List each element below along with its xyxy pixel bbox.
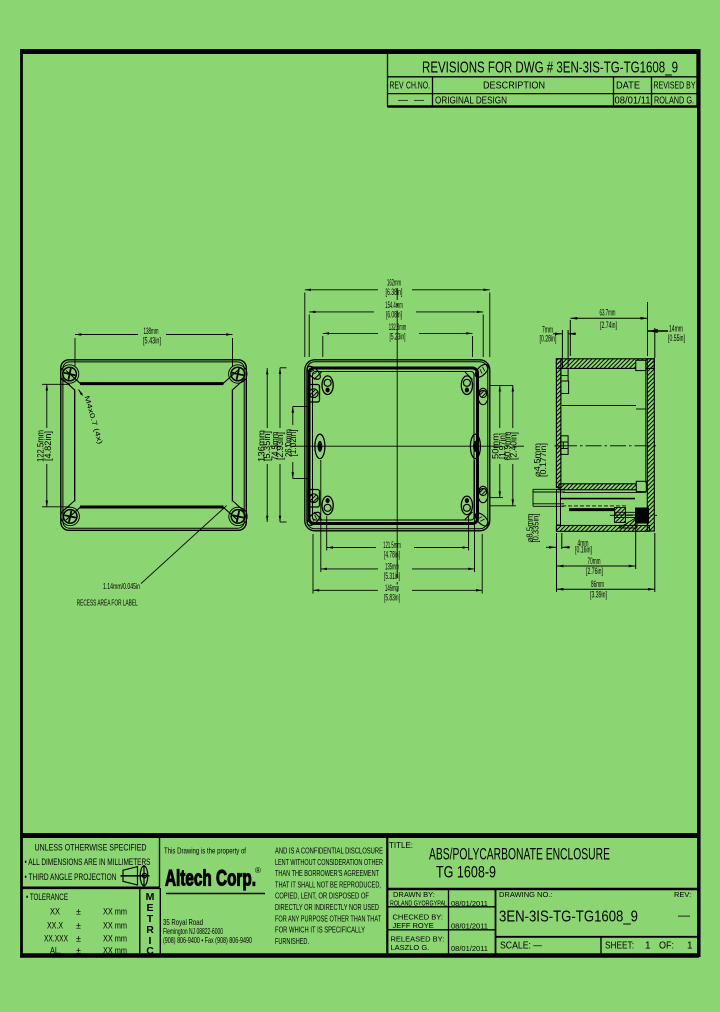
svg-text:[0.55in]: [0.55in]	[668, 333, 685, 344]
svg-text:[5.83in]: [5.83in]	[384, 593, 400, 604]
svg-text:[6.08in]: [6.08in]	[386, 310, 402, 321]
svg-text:63.7mm: 63.7mm	[600, 308, 616, 319]
svg-text:08/01/11: 08/01/11	[615, 96, 651, 107]
svg-text:3EN-3IS-TG-TG1608_9: 3EN-3IS-TG-TG1608_9	[499, 909, 638, 926]
svg-text:DIRECTLY OR INDIRECTLY NOR USE: DIRECTLY OR INDIRECTLY NOR USED	[275, 903, 379, 912]
svg-text:This Drawing is the property o: This Drawing is the property of	[164, 846, 246, 856]
svg-text:XX.X: XX.X	[47, 921, 63, 931]
svg-text:1.14mm/0.045in: 1.14mm/0.045in	[103, 581, 140, 591]
svg-text:[0.16in]: [0.16in]	[575, 545, 592, 556]
svg-text:XX.XXX: XX.XXX	[44, 934, 68, 944]
svg-text:±: ±	[76, 921, 81, 931]
svg-text:—: —	[398, 95, 408, 106]
svg-text:FURNISHED.: FURNISHED.	[275, 937, 309, 946]
svg-text:ROLAND GYORGYPAL: ROLAND GYORGYPAL	[390, 899, 447, 908]
svg-text:08/01/2011: 08/01/2011	[451, 922, 488, 931]
svg-text:• ALL DIMENSIONS ARE IN MILLIM: • ALL DIMENSIONS ARE IN MILLIMETERS	[25, 857, 151, 868]
svg-text:08/01/2011: 08/01/2011	[451, 944, 488, 953]
svg-text:±: ±	[76, 946, 81, 956]
svg-text:XX mm: XX mm	[103, 934, 127, 944]
svg-text:• THIRD ANGLE PROJECTION: • THIRD ANGLE PROJECTION	[25, 872, 117, 883]
svg-text:DRAWING NO.:: DRAWING NO.:	[499, 890, 552, 899]
svg-text:—: —	[678, 908, 690, 922]
svg-text:[5.43in]: [5.43in]	[143, 336, 161, 347]
svg-text:REVISED BY: REVISED BY	[654, 81, 696, 92]
svg-text:[5.23in]: [5.23in]	[390, 332, 406, 343]
svg-text:XX mm: XX mm	[103, 907, 127, 917]
svg-text:TITLE:: TITLE:	[389, 841, 413, 850]
svg-text:DATE: DATE	[616, 81, 640, 92]
svg-text:ABS/POLYCARBONATE ENCLOSURE: ABS/POLYCARBONATE ENCLOSURE	[429, 846, 610, 864]
svg-text:Altech Corp.: Altech Corp.	[165, 866, 256, 891]
svg-text:AL.: AL.	[50, 946, 61, 956]
svg-text:1: 1	[645, 941, 651, 952]
svg-text:FOR WHICH IT IS SPECIFICALLY: FOR WHICH IT IS SPECIFICALLY	[275, 926, 365, 935]
svg-text:C: C	[146, 945, 154, 957]
svg-text:COPIED, LENT, OR DISPOSED OF: COPIED, LENT, OR DISPOSED OF	[275, 892, 369, 901]
svg-text:DESCRIPTION: DESCRIPTION	[483, 81, 545, 92]
svg-text:[4.82in]: [4.82in]	[43, 431, 53, 461]
svg-text:FOR ANY PURPOSE OTHER THAN THA: FOR ANY PURPOSE OTHER THAN THAT	[275, 914, 381, 923]
svg-text:THAT IT SHALL NOT BE REPRODUCE: THAT IT SHALL NOT BE REPRODUCED,	[275, 880, 381, 889]
svg-text:[0.177in]: [0.177in]	[538, 443, 548, 477]
svg-text:[2.40in]: [2.40in]	[509, 432, 519, 460]
svg-text:THAN THE BORROWER'S AGREEMENT: THAN THE BORROWER'S AGREEMENT	[275, 869, 379, 878]
svg-text:XX mm: XX mm	[103, 921, 127, 931]
svg-text:XX: XX	[50, 907, 60, 917]
svg-text:[1.02in]: [1.02in]	[288, 430, 298, 457]
svg-text:LASZLO G.: LASZLO G.	[391, 943, 430, 952]
svg-text:OF:: OF:	[659, 941, 674, 952]
svg-text:JEFF ROYE: JEFF ROYE	[393, 921, 434, 930]
svg-text:[0.28in]: [0.28in]	[540, 334, 557, 345]
svg-text:REVISIONS FOR DWG # 3EN-3IS-TG: REVISIONS FOR DWG # 3EN-3IS-TG-TG1608_9	[422, 60, 678, 77]
svg-text:ORIGINAL DESIGN: ORIGINAL DESIGN	[435, 96, 507, 107]
svg-text:REV: REV	[390, 81, 404, 92]
svg-text:®: ®	[255, 866, 261, 875]
svg-text:[4.78in]: [4.78in]	[384, 550, 400, 561]
svg-text:(908) 806-9400 • Fax (908) 806: (908) 806-9400 • Fax (908) 806-9490	[163, 935, 252, 945]
svg-text:±: ±	[76, 907, 81, 917]
svg-text:[5.31in]: [5.31in]	[384, 571, 400, 582]
svg-text:TG 1608-9: TG 1608-9	[436, 864, 496, 882]
svg-text:LENT WITHOUT CONSIDERATION OTH: LENT WITHOUT CONSIDERATION OTHER	[275, 858, 383, 867]
svg-text:1: 1	[687, 941, 693, 952]
svg-text:AND IS A CONFIDENTIAL DISCLOSU: AND IS A CONFIDENTIAL DISCLOSURE	[275, 847, 383, 856]
svg-text:[2.74in]: [2.74in]	[600, 320, 617, 331]
svg-text:[2.76in]: [2.76in]	[586, 566, 603, 577]
svg-text:[6.38in]: [6.38in]	[386, 287, 403, 298]
svg-text:08/01/2011: 08/01/2011	[451, 899, 488, 908]
svg-text:CH.NO.: CH.NO.	[406, 81, 430, 92]
svg-text:ROLAND G.: ROLAND G.	[654, 96, 694, 107]
svg-text:[3.39in]: [3.39in]	[590, 589, 607, 600]
svg-text:—: —	[414, 95, 424, 106]
svg-text:REV:: REV:	[674, 890, 691, 899]
svg-text:SHEET:: SHEET:	[605, 941, 634, 952]
svg-text:±: ±	[76, 934, 81, 944]
svg-text:SCALE: —: SCALE: —	[500, 941, 542, 952]
svg-text:XX mm: XX mm	[103, 946, 127, 956]
svg-text:UNLESS OTHERWISE SPECIFIED: UNLESS OTHERWISE SPECIFIED	[35, 843, 147, 854]
svg-text:RECESS AREA FOR LABEL: RECESS AREA FOR LABEL	[77, 598, 138, 608]
svg-text:[0.335in]: [0.335in]	[531, 514, 541, 543]
svg-text:• TOLERANCE: • TOLERANCE	[26, 892, 68, 902]
